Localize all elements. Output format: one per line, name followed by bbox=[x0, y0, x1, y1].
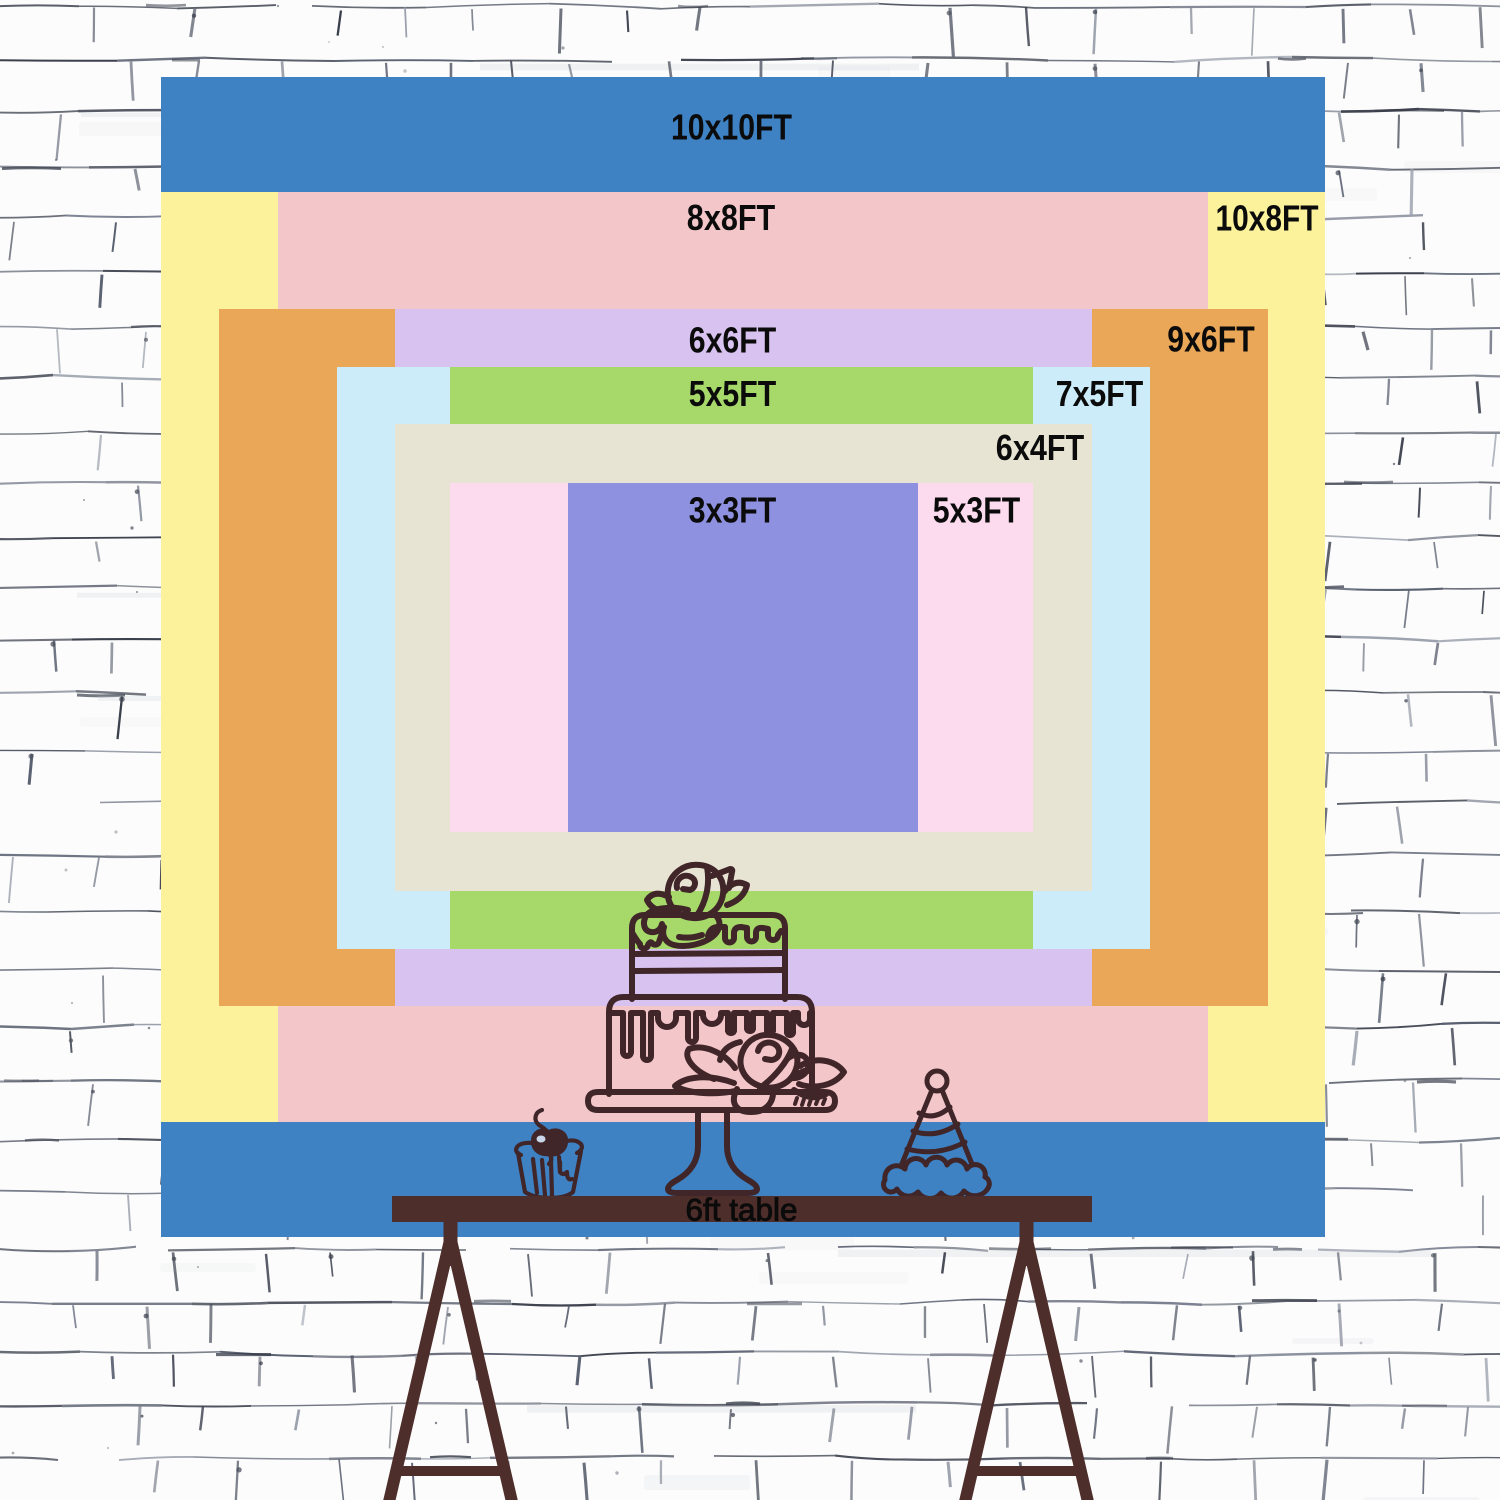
svg-text:8x8FT: 8x8FT bbox=[687, 199, 776, 239]
svg-text:5x5FT: 5x5FT bbox=[689, 374, 776, 414]
svg-text:10x10FT: 10x10FT bbox=[671, 108, 792, 148]
svg-text:5x3FT: 5x3FT bbox=[933, 491, 1020, 531]
svg-text:10x8FT: 10x8FT bbox=[1216, 199, 1319, 239]
svg-text:6x6FT: 6x6FT bbox=[689, 321, 776, 361]
svg-text:7x5FT: 7x5FT bbox=[1056, 374, 1143, 414]
svg-text:6x4FT: 6x4FT bbox=[996, 429, 1085, 469]
svg-text:9x6FT: 9x6FT bbox=[1167, 320, 1254, 360]
svg-text:3x3FT: 3x3FT bbox=[689, 491, 776, 531]
svg-text:6ft table: 6ft table bbox=[685, 1192, 797, 1228]
